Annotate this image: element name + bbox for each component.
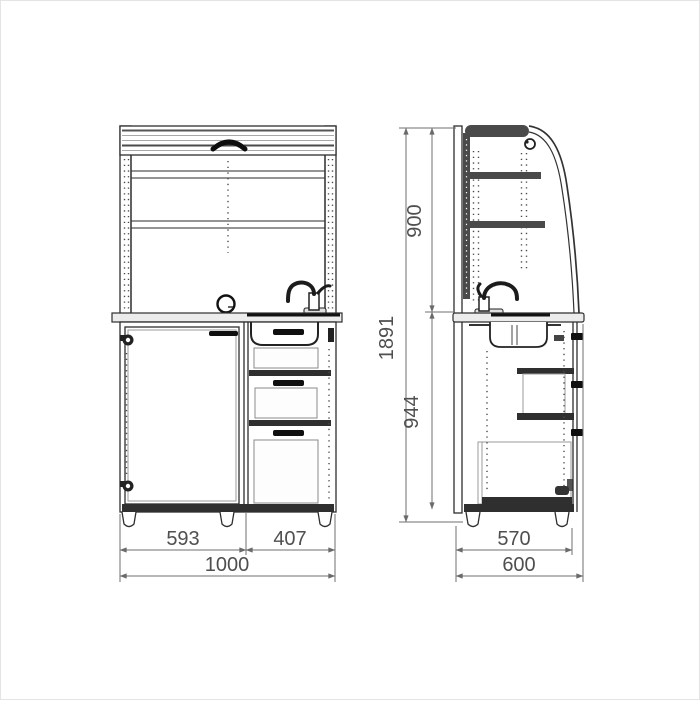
drawer-3-handle (273, 430, 304, 436)
side-shelves (469, 151, 545, 301)
total-depth-label: 600 (502, 554, 535, 576)
side-faucet (475, 283, 517, 315)
drawer-3-panel (254, 440, 318, 503)
foot-right (318, 512, 332, 527)
drawer-box-section (523, 374, 565, 414)
front-view (112, 126, 342, 527)
total-height-label: 1891 (376, 316, 398, 361)
roller-shutter (120, 126, 336, 155)
shutter-roll-pin (525, 140, 528, 143)
side-foot-front (555, 512, 569, 527)
slide-rail-2 (517, 413, 574, 420)
front-base (120, 322, 336, 527)
corner-bracket (555, 486, 569, 495)
side-interior (478, 331, 574, 504)
door-width-label: 593 (166, 528, 199, 550)
drawing-canvas: 593 407 1000 570 600 1891 900 944 (0, 0, 700, 700)
rail-2 (249, 420, 331, 426)
side-handle-2 (571, 381, 583, 388)
drawer-2-handle (273, 380, 304, 386)
front-feet (122, 512, 332, 527)
knob (218, 296, 235, 313)
big-drawer-bottom (482, 497, 572, 504)
curved-front-outer (529, 126, 579, 313)
drawer-1-handle (273, 329, 304, 335)
front-worktop (112, 283, 342, 322)
side-handle-3 (571, 429, 583, 436)
side-handle-1 (571, 333, 583, 340)
side-shelf-2 (469, 221, 545, 228)
technical-drawing: 593 407 1000 570 600 1891 900 944 (1, 1, 700, 701)
side-view (453, 125, 584, 527)
base-height-label: 944 (401, 395, 423, 428)
rail-1 (249, 370, 331, 376)
front-faucet (288, 283, 330, 314)
foot-middle (220, 512, 234, 527)
hinge-bottom-hole (126, 484, 130, 488)
side-slide-mark (328, 328, 334, 342)
sink-bowl-section (490, 322, 547, 347)
body-depth-label: 570 (497, 528, 530, 550)
side-shelf-1 (469, 172, 541, 179)
drawer-2-panel (255, 388, 317, 418)
side-plinth-rail (464, 504, 574, 512)
back-rail (463, 133, 470, 299)
side-feet (466, 512, 569, 527)
door-handle (209, 331, 238, 336)
hinge-top-hole (126, 338, 130, 342)
slide-rail-1 (517, 368, 574, 374)
drawers-width-label: 407 (273, 528, 306, 550)
foot-left (122, 512, 136, 527)
hutch-shelves (131, 171, 325, 228)
upper-height-label: 900 (404, 204, 426, 237)
front-hutch (120, 126, 336, 314)
slide-bracket (554, 335, 564, 341)
top-bar (465, 125, 529, 137)
total-width-label: 1000 (205, 554, 250, 576)
drawer-1-panel (254, 348, 318, 368)
plinth-rail (122, 504, 334, 512)
side-foot-back (466, 512, 480, 527)
side-faucet-lever (478, 284, 481, 296)
